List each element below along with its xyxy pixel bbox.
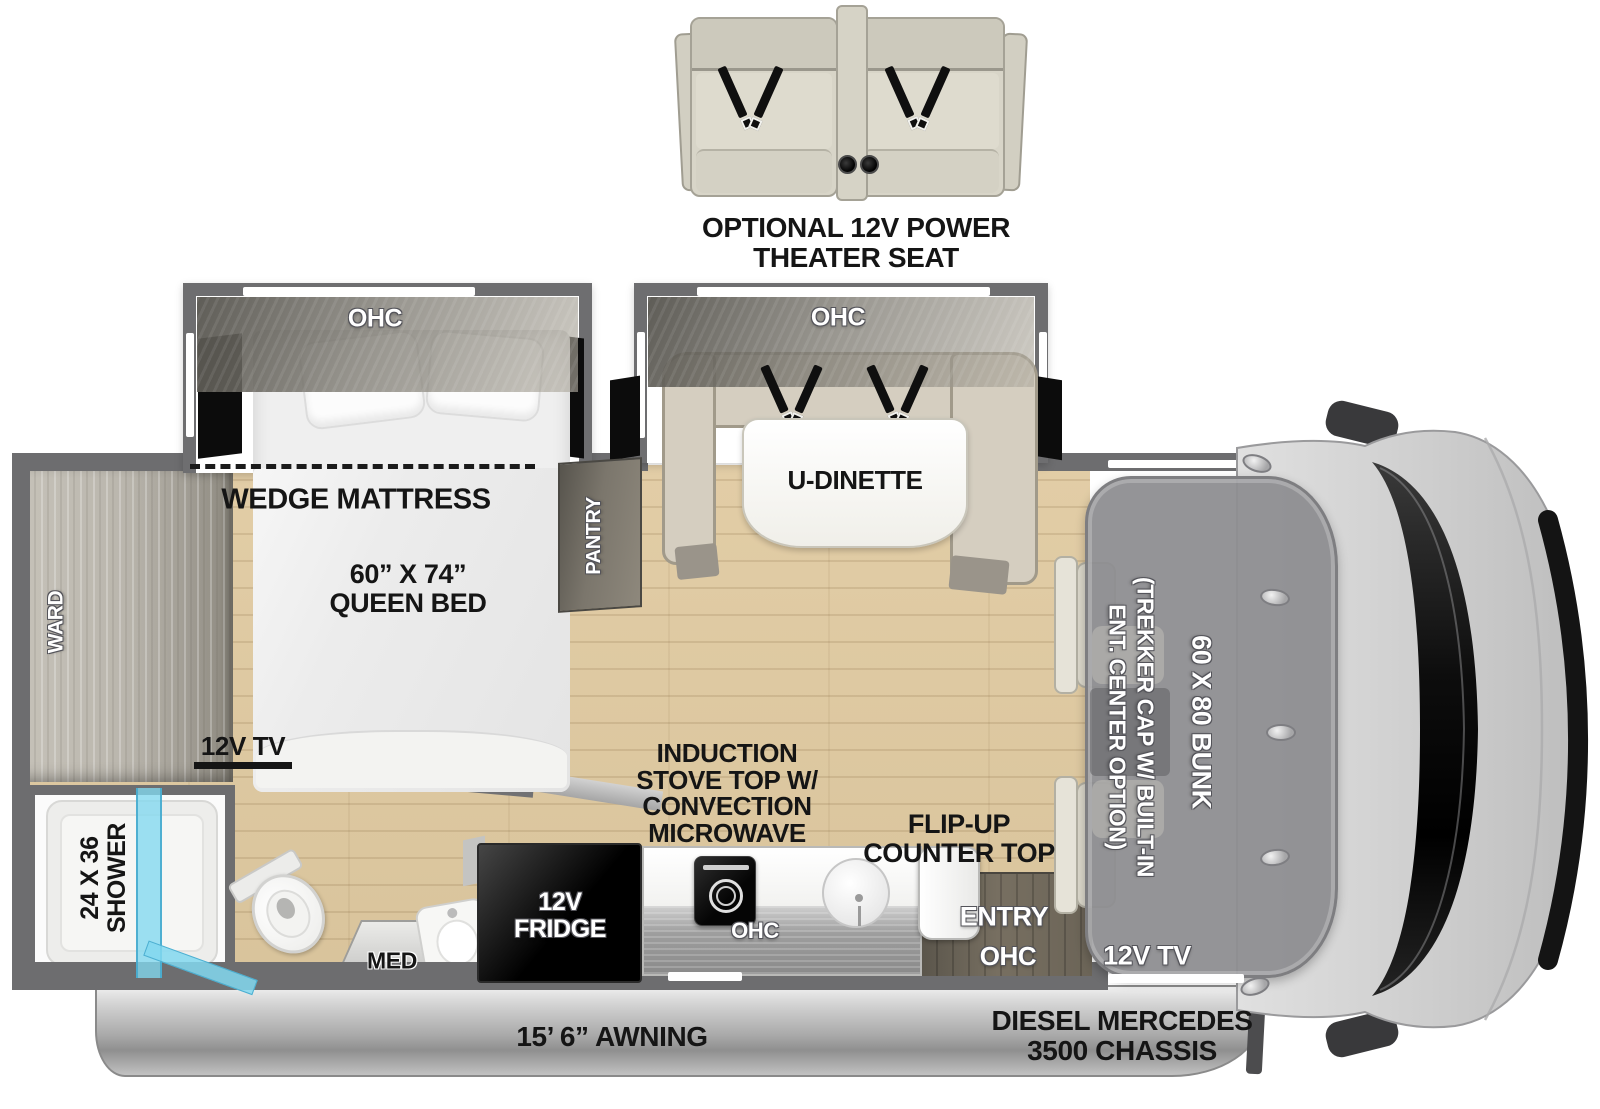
- u-dinette-label: U-DINETTE: [787, 466, 922, 494]
- sink-drain: [855, 894, 863, 902]
- cup-holder-icon: [860, 155, 879, 174]
- entry-label: ENTRY: [960, 902, 1049, 931]
- kitchen-sink: [822, 858, 890, 928]
- sink-faucet-handle: [858, 906, 861, 926]
- bunk-label: 60 X 80 BUNK: [1186, 635, 1215, 809]
- dinette-window-left: [610, 376, 640, 461]
- bedroom-ohc-label: OHC: [348, 306, 402, 333]
- entry-ohc-label: OHC: [980, 942, 1037, 970]
- awning-label: 15’ 6” AWNING: [516, 1022, 707, 1052]
- kitchen-ohc-label: OHC: [731, 919, 779, 943]
- pantry-label: PANTRY: [584, 497, 606, 575]
- cap-snap-icon: [1266, 724, 1296, 741]
- queen-bed-label: 60” X 74” QUEEN BED: [330, 560, 487, 618]
- dinette-bench-foot-right: [948, 555, 1009, 595]
- passenger-seat-back: [1054, 776, 1078, 914]
- dinette-bench-foot-left: [674, 543, 719, 580]
- wedge-mattress-label: WEDGE MATTRESS: [221, 484, 490, 515]
- trekker-cap-label: (TREKKER CAP W/ BUILT-IN ENT. CENTER OPT…: [1103, 577, 1158, 877]
- stove-control-bar: [703, 865, 749, 870]
- cab-tv-underline: [1108, 974, 1244, 983]
- driver-seat-back: [1054, 556, 1078, 694]
- theater-seat-headrest: [692, 19, 836, 71]
- window-strip-bottom: [668, 972, 742, 981]
- rv-floorplan: OPTIONAL 12V POWER THEATER SEAT OHC OHC …: [0, 0, 1600, 1109]
- bedroom-left-wall-strip: [186, 333, 194, 437]
- dinette-slideout-window-strip: [697, 287, 990, 296]
- window-strip-top-right: [1108, 460, 1240, 468]
- bedroom-tv-underline: [194, 762, 292, 769]
- dinette-ohc-label: OHC: [811, 305, 865, 332]
- induction-stove-burner: [694, 856, 756, 926]
- cup-holder-icon: [838, 155, 857, 174]
- rear-wall: [12, 453, 30, 990]
- theater-seat-footrest: [696, 149, 832, 193]
- theater-seat-footrest: [863, 149, 999, 193]
- theater-seat-graphic: [673, 5, 1029, 205]
- ward-label: WARD: [46, 591, 69, 654]
- bath-sink-basin: [433, 916, 482, 969]
- bath-faucet: [446, 907, 458, 919]
- chassis-label: DIESEL MERCEDES 3500 CHASSIS: [991, 1006, 1252, 1066]
- med-cabinet-label: MED: [367, 949, 417, 974]
- stove-burner-ring-inner: [716, 886, 736, 906]
- induction-stove-label: INDUCTION STOVE TOP W/ CONVECTION MICROW…: [636, 740, 818, 846]
- theater-seat-label: OPTIONAL 12V POWER THEATER SEAT: [702, 213, 1010, 273]
- slideout-dashed-line: [190, 464, 535, 469]
- flip-up-counter-label: FLIP-UP COUNTER TOP: [863, 810, 1055, 868]
- bedroom-tv-label: 12V TV: [201, 732, 285, 760]
- dinette-window-right: [1034, 376, 1062, 460]
- fridge-label: 12V FRIDGE: [514, 889, 606, 943]
- shower-label: 24 X 36 SHOWER: [77, 823, 131, 933]
- top-wall-left: [12, 453, 196, 471]
- bedroom-slideout-window-strip: [243, 287, 475, 296]
- bed-foot-fold: [256, 730, 567, 788]
- cab-tv-label: 12V TV: [1103, 941, 1191, 970]
- theater-seat-headrest: [859, 19, 1003, 71]
